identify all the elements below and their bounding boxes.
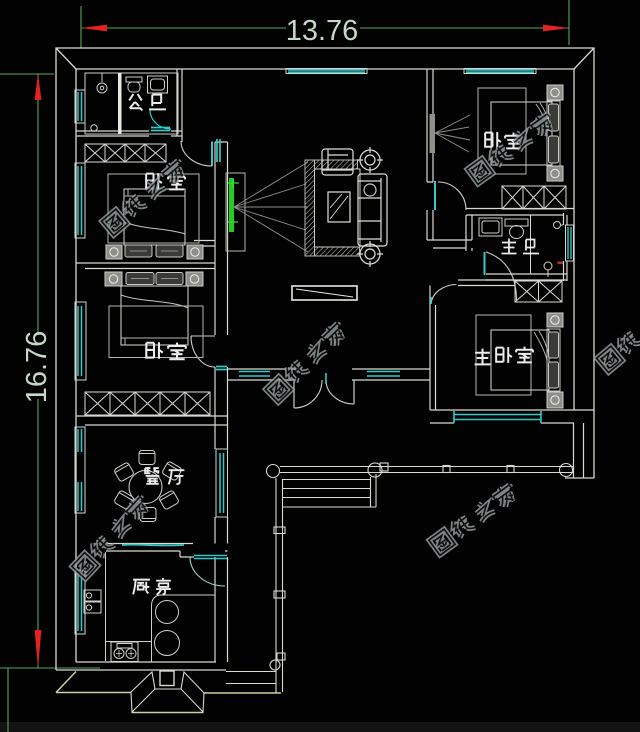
svg-text:16.76: 16.76: [21, 331, 53, 404]
svg-text:13.76: 13.76: [286, 15, 359, 47]
